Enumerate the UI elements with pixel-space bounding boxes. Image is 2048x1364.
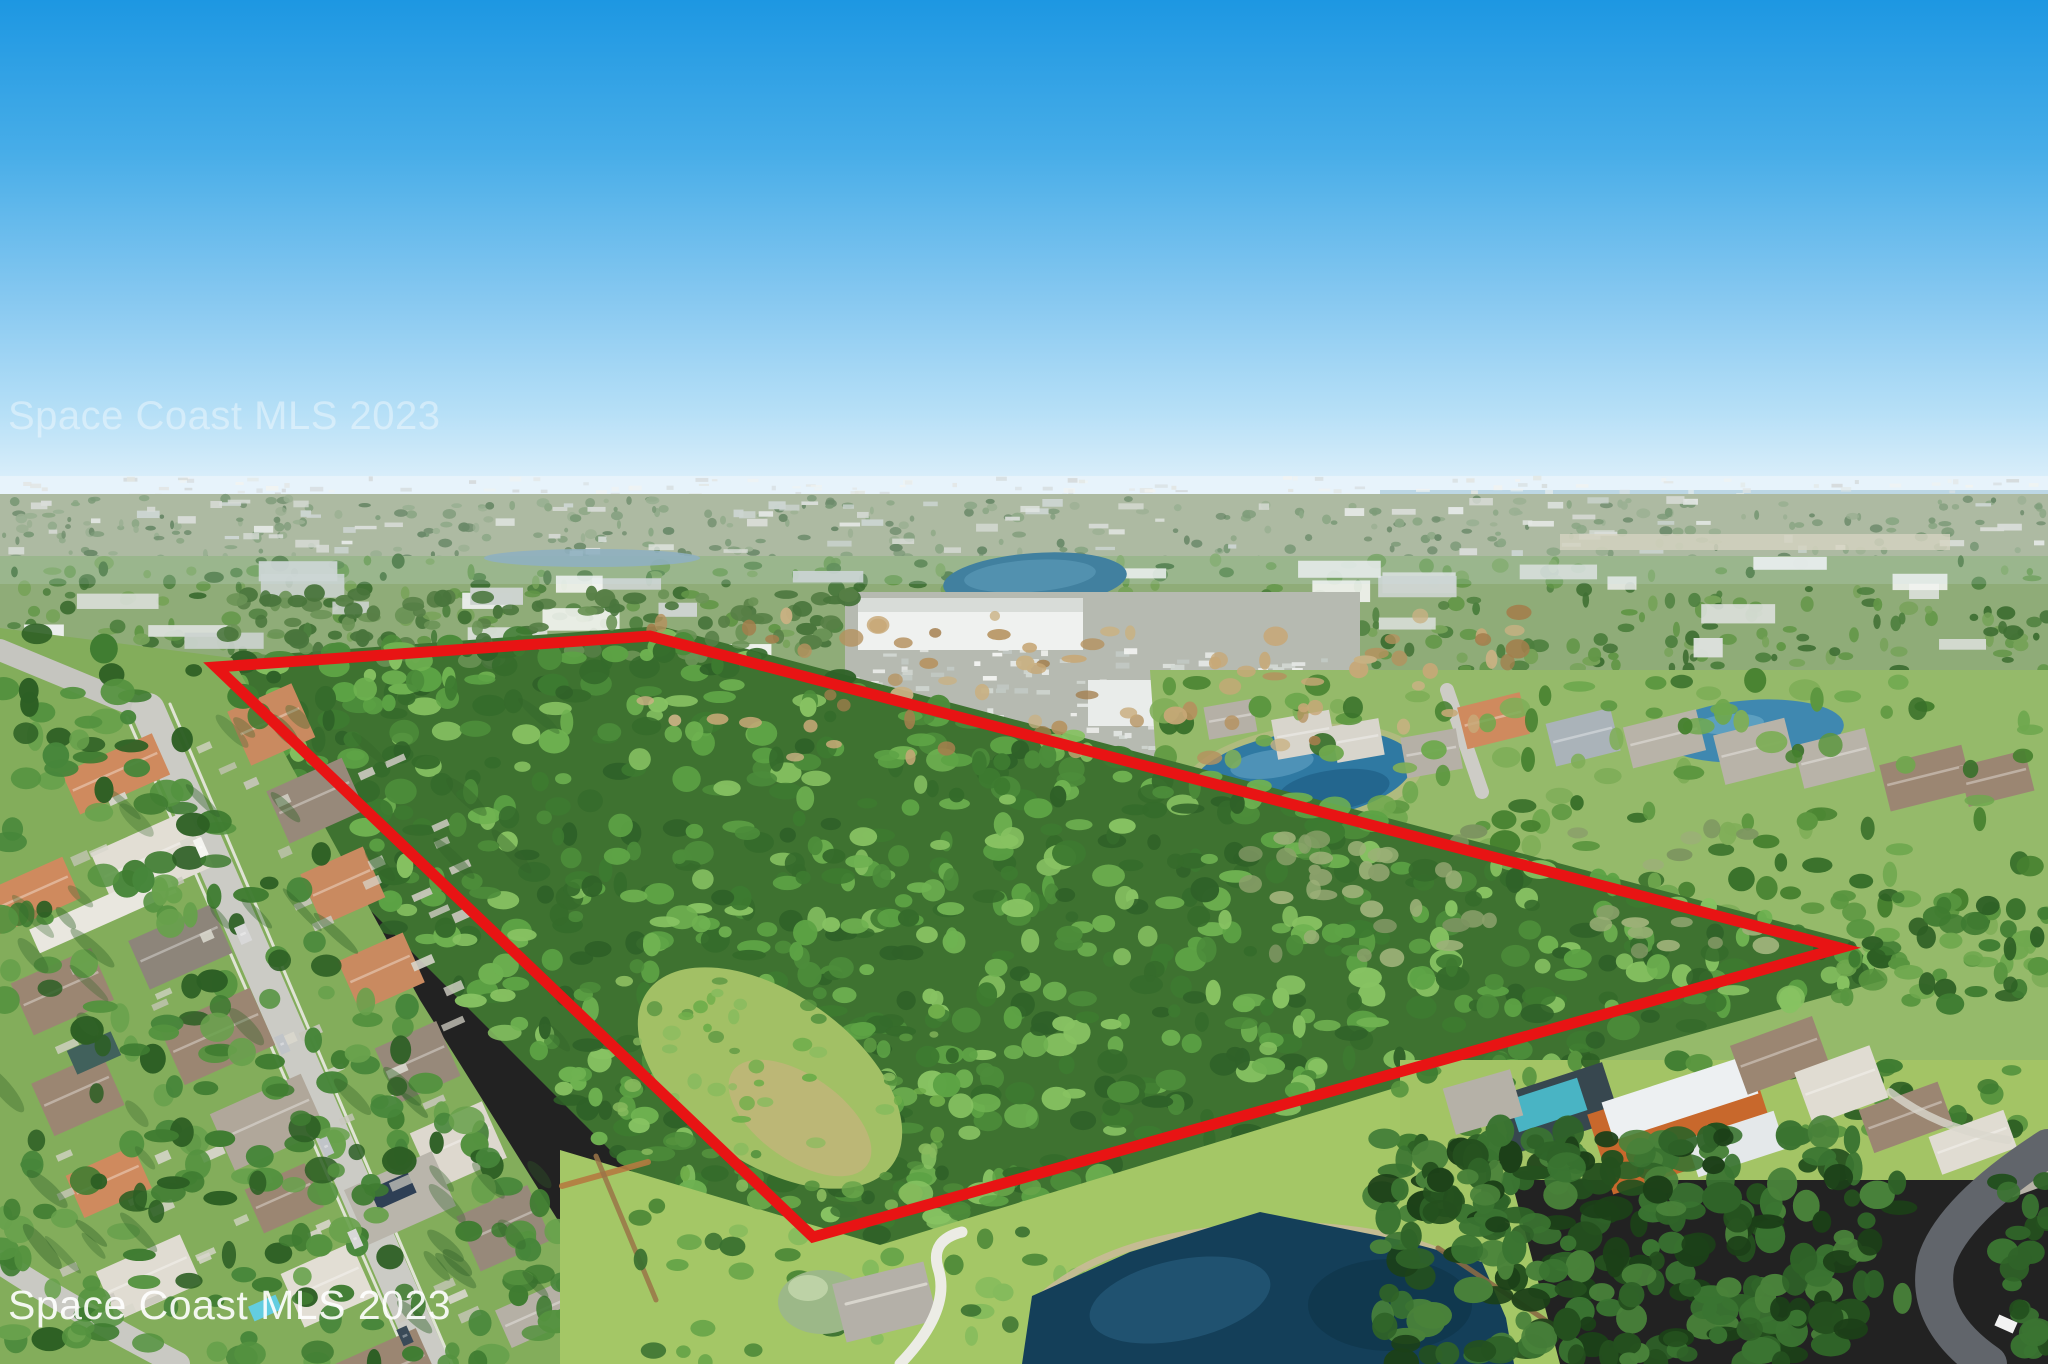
- scene-svg: [0, 0, 2048, 1364]
- aerial-photo: Space Coast MLS 2023 Space Coast MLS 202…: [0, 0, 2048, 1364]
